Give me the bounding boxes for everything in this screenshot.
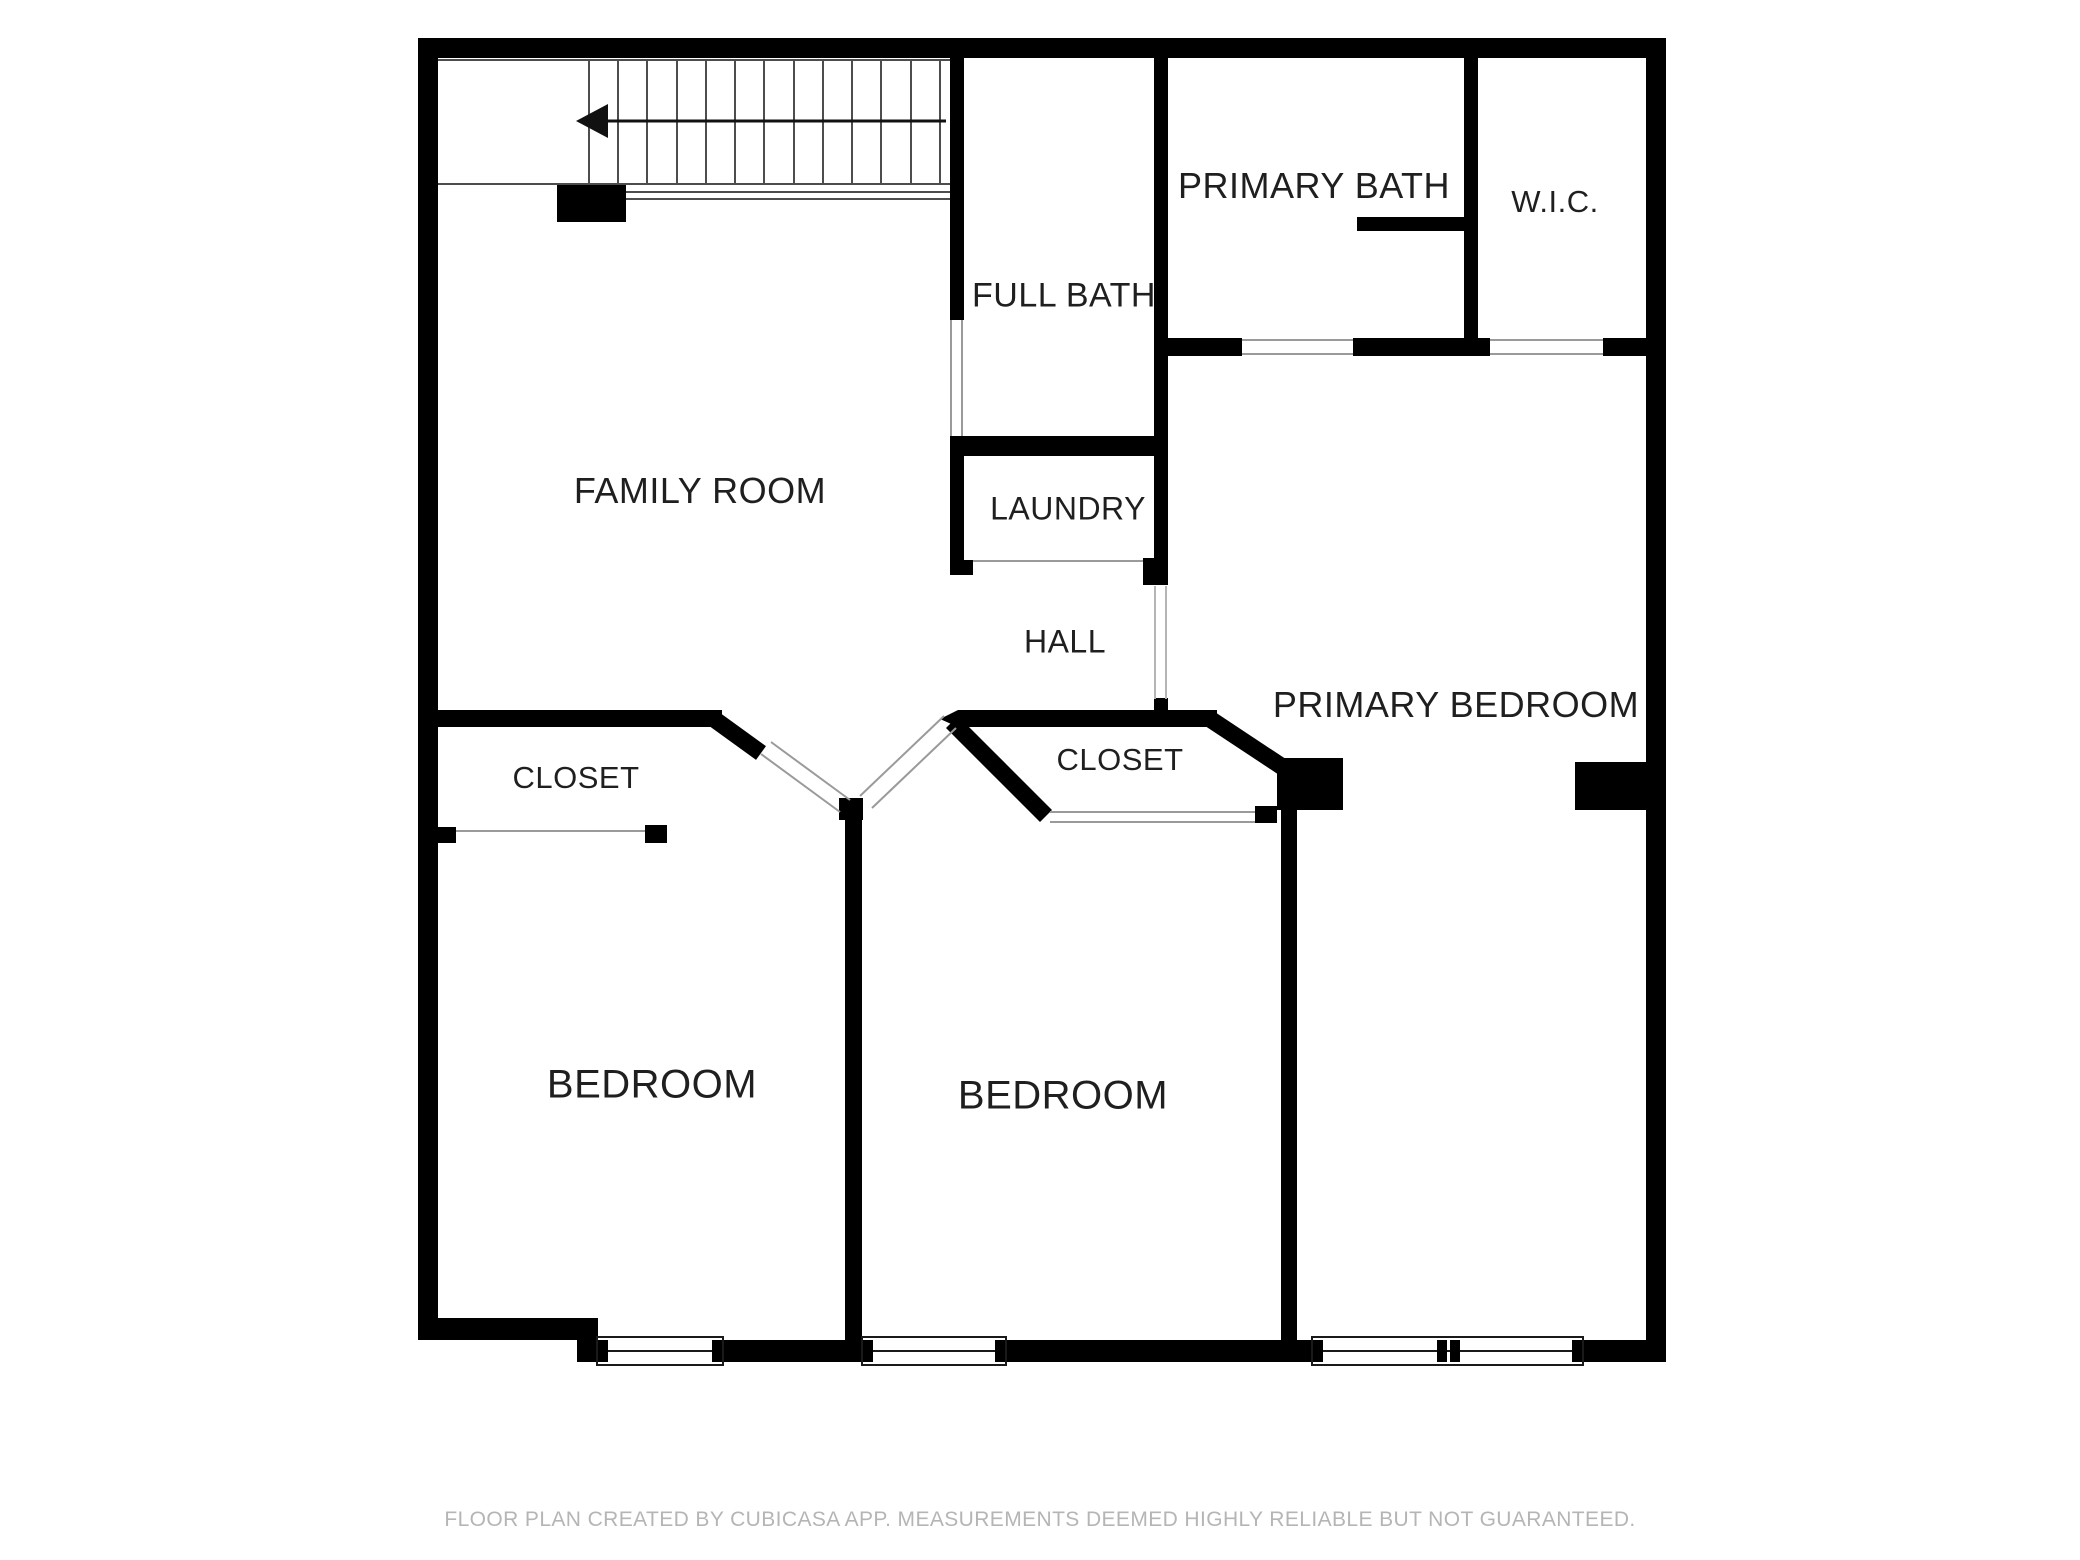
wall-closet-left-stub-a (438, 827, 456, 843)
wall-bath-wic-divider (1464, 58, 1478, 356)
wall-left (418, 38, 438, 1340)
wall-bottom-step (577, 1318, 598, 1362)
room-label-bedroom-left: BEDROOM (547, 1063, 757, 1108)
wall-divider1-jamb (839, 798, 863, 820)
wall-closet-right-left-diagonal (952, 722, 1046, 816)
room-label-wic: W.I.C. (1511, 184, 1598, 220)
wall-right-pier (1575, 762, 1646, 810)
window-bedroom-right (862, 1337, 1006, 1365)
wall-closet-left-stub-b (645, 825, 667, 843)
wall-bath-stub (1357, 217, 1478, 231)
footer-disclaimer: FLOOR PLAN CREATED BY CUBICASA APP. MEAS… (0, 1508, 2080, 1532)
wall-laundry-top (950, 436, 1168, 456)
wall-closet-right-right-diagonal (1210, 719, 1284, 768)
room-label-bedroom-right: BEDROOM (958, 1074, 1168, 1119)
wall-closet-right-top (958, 710, 1217, 727)
stairs (438, 60, 950, 199)
room-label-full-bath: FULL BATH (972, 277, 1156, 316)
room-label-closet-left: CLOSET (512, 760, 639, 796)
wall-closet-left-top (438, 710, 722, 727)
room-label-family-room: FAMILY ROOM (574, 470, 826, 512)
wall-hall-stub (1154, 698, 1168, 712)
wall-laundry-left (950, 436, 964, 575)
wall-laundry-left-stub (950, 560, 973, 575)
window-primary-bedroom (1312, 1337, 1583, 1365)
room-label-hall: HALL (1024, 624, 1106, 661)
door-openings (456, 320, 1603, 831)
floor-plan-page: FAMILY ROOM FULL BATH PRIMARY BATH W.I.C… (0, 0, 2080, 1560)
arrow-head (576, 104, 608, 138)
room-label-primary-bedroom: PRIMARY BEDROOM (1273, 684, 1639, 726)
wall-right (1646, 38, 1666, 1362)
wall-closet-right-block (1277, 758, 1343, 810)
door-bedroom-right-diagonal (860, 716, 944, 796)
wall-bathzone-bottom-c (1603, 338, 1646, 356)
wall-stair-block (557, 184, 626, 222)
floor-plan-drawing (0, 0, 2080, 1560)
wall-fullbath-left (950, 58, 964, 320)
room-label-closet-right: CLOSET (1056, 742, 1183, 778)
stairs-direction-arrow-icon (576, 104, 946, 138)
room-label-primary-bath: PRIMARY BATH (1178, 165, 1450, 207)
wall-closet-right-stub (1255, 806, 1277, 823)
wall-laundry-right-stub (1143, 558, 1168, 585)
wall-closet-left-diagonal (714, 719, 761, 753)
wall-fullbath-right (1154, 58, 1168, 456)
room-label-laundry: LAUNDRY (990, 491, 1146, 528)
window-bedroom-left (597, 1337, 723, 1365)
wall-bottom-left-raised (418, 1318, 598, 1340)
wall-bedroom-divider1 (845, 818, 862, 1342)
wall-top (418, 38, 1666, 58)
wall-bedroom-divider2 (1281, 810, 1297, 1342)
door-bedroom-right-diagonal (872, 728, 956, 808)
wall-bathzone-bottom-a (1154, 338, 1242, 356)
